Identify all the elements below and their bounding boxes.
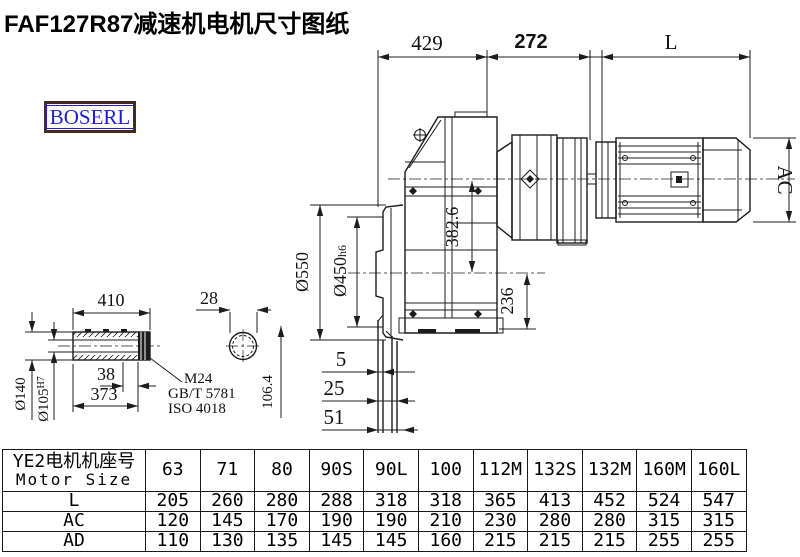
dim-410-label: 410 xyxy=(98,290,125,310)
table-cell: 145 xyxy=(200,512,255,532)
dia-105-label: Ø105H7 xyxy=(36,376,52,422)
table-cell: 145 xyxy=(364,532,419,552)
table-header-col-112M: 112M xyxy=(473,450,528,492)
table-cell: 288 xyxy=(309,492,364,512)
table-cell: 190 xyxy=(364,512,419,532)
dia-550-label: Ø550 xyxy=(292,252,312,292)
dim-5-label: 5 xyxy=(336,347,347,371)
row-label-AC: AC xyxy=(3,512,146,532)
table-row-AC: AC120145170190190210230280280315315 xyxy=(3,512,747,532)
dim-429-label: 429 xyxy=(411,31,443,55)
table-cell: 260 xyxy=(200,492,255,512)
table-header-col-160M: 160M xyxy=(637,450,692,492)
table-cell: 215 xyxy=(473,532,528,552)
header-en: Motor Size xyxy=(3,472,145,489)
table-cell: 365 xyxy=(473,492,528,512)
drawing-sheet: FAF127R87减速机电机尺寸图纸 BOSERL xyxy=(0,0,800,557)
dim-236-label: 236 xyxy=(497,288,517,315)
motor-size-table: YE2电机机座号 Motor Size 63718090S90L100112M1… xyxy=(2,449,747,552)
table-header-row: YE2电机机座号 Motor Size 63718090S90L100112M1… xyxy=(3,450,747,492)
dim-L-label: L xyxy=(665,30,678,54)
table-row-L: L205260280288318318365413452524547 xyxy=(3,492,747,512)
table-cell: 130 xyxy=(200,532,255,552)
table-header-col-90L: 90L xyxy=(364,450,419,492)
dim-28-label: 28 xyxy=(200,288,218,308)
table-cell: 170 xyxy=(255,512,310,532)
table-cell: 215 xyxy=(582,532,637,552)
table-cell: 318 xyxy=(418,492,473,512)
table-header-col-80: 80 xyxy=(255,450,310,492)
table-cell: 318 xyxy=(364,492,419,512)
table-cell: 205 xyxy=(146,492,201,512)
dia-140-label: Ø140 xyxy=(13,377,29,410)
table-cell: 280 xyxy=(528,512,583,532)
table-cell: 255 xyxy=(637,532,692,552)
dim-272-label: 272 xyxy=(514,31,547,53)
table-cell: 315 xyxy=(637,512,692,532)
table-cell: 215 xyxy=(528,532,583,552)
dim-AC-label: AC xyxy=(773,165,797,194)
technical-drawing: 429 272 L xyxy=(0,0,800,450)
table-cell: 230 xyxy=(473,512,528,532)
table-cell: 210 xyxy=(418,512,473,532)
table-cell: 110 xyxy=(146,532,201,552)
table-cell: 413 xyxy=(528,492,583,512)
table-cell: 452 xyxy=(582,492,637,512)
dim-25-label: 25 xyxy=(324,376,345,400)
main-view-dimensions: Ø550 Ø450h6 382.6 236 AC xyxy=(292,138,797,433)
dia-450-label: Ø450h6 xyxy=(330,245,350,297)
table-cell: 280 xyxy=(582,512,637,532)
table-cell: 145 xyxy=(309,532,364,552)
table-cell: 120 xyxy=(146,512,201,532)
table-header-col-90S: 90S xyxy=(309,450,364,492)
table-row-AD: AD110130135145145160215215215255255 xyxy=(3,532,747,552)
table-header-col-132M: 132M xyxy=(582,450,637,492)
motor xyxy=(596,138,750,222)
table-cell: 255 xyxy=(691,532,746,552)
table-header-col-71: 71 xyxy=(200,450,255,492)
dim-106-label: 106.4 xyxy=(260,375,276,409)
top-dimension-chain: 429 272 L xyxy=(378,30,750,207)
table-cell: 547 xyxy=(691,492,746,512)
dim-38-label: 38 xyxy=(97,364,115,384)
table-cell: 280 xyxy=(255,492,310,512)
thread-standard-gb: GB/T 5781 xyxy=(168,386,236,402)
thread-label: M24 xyxy=(184,371,213,387)
dim-382-label: 382.6 xyxy=(442,207,462,248)
table-header-col-160L: 160L xyxy=(691,450,746,492)
table-header-col-132S: 132S xyxy=(528,450,583,492)
centerlines xyxy=(58,179,795,363)
table-body: L205260280288318318365413452524547AC1201… xyxy=(3,492,747,552)
table-cell: 315 xyxy=(691,512,746,532)
header-cn: YE2电机机座号 xyxy=(3,453,145,472)
thread-standard-iso: ISO 4018 xyxy=(168,401,226,417)
row-label-L: L xyxy=(3,492,146,512)
table-cell: 524 xyxy=(637,492,692,512)
row-label-AD: AD xyxy=(3,532,146,552)
table-cell: 160 xyxy=(418,532,473,552)
dim-51-label: 51 xyxy=(324,405,345,429)
table-header-motor-size: YE2电机机座号 Motor Size xyxy=(3,450,146,492)
table-header-col-100: 100 xyxy=(418,450,473,492)
table-header-col-63: 63 xyxy=(146,450,201,492)
table-cell: 190 xyxy=(309,512,364,532)
table-cell: 135 xyxy=(255,532,310,552)
dim-373-label: 373 xyxy=(91,384,118,404)
gear-unit xyxy=(497,135,596,245)
